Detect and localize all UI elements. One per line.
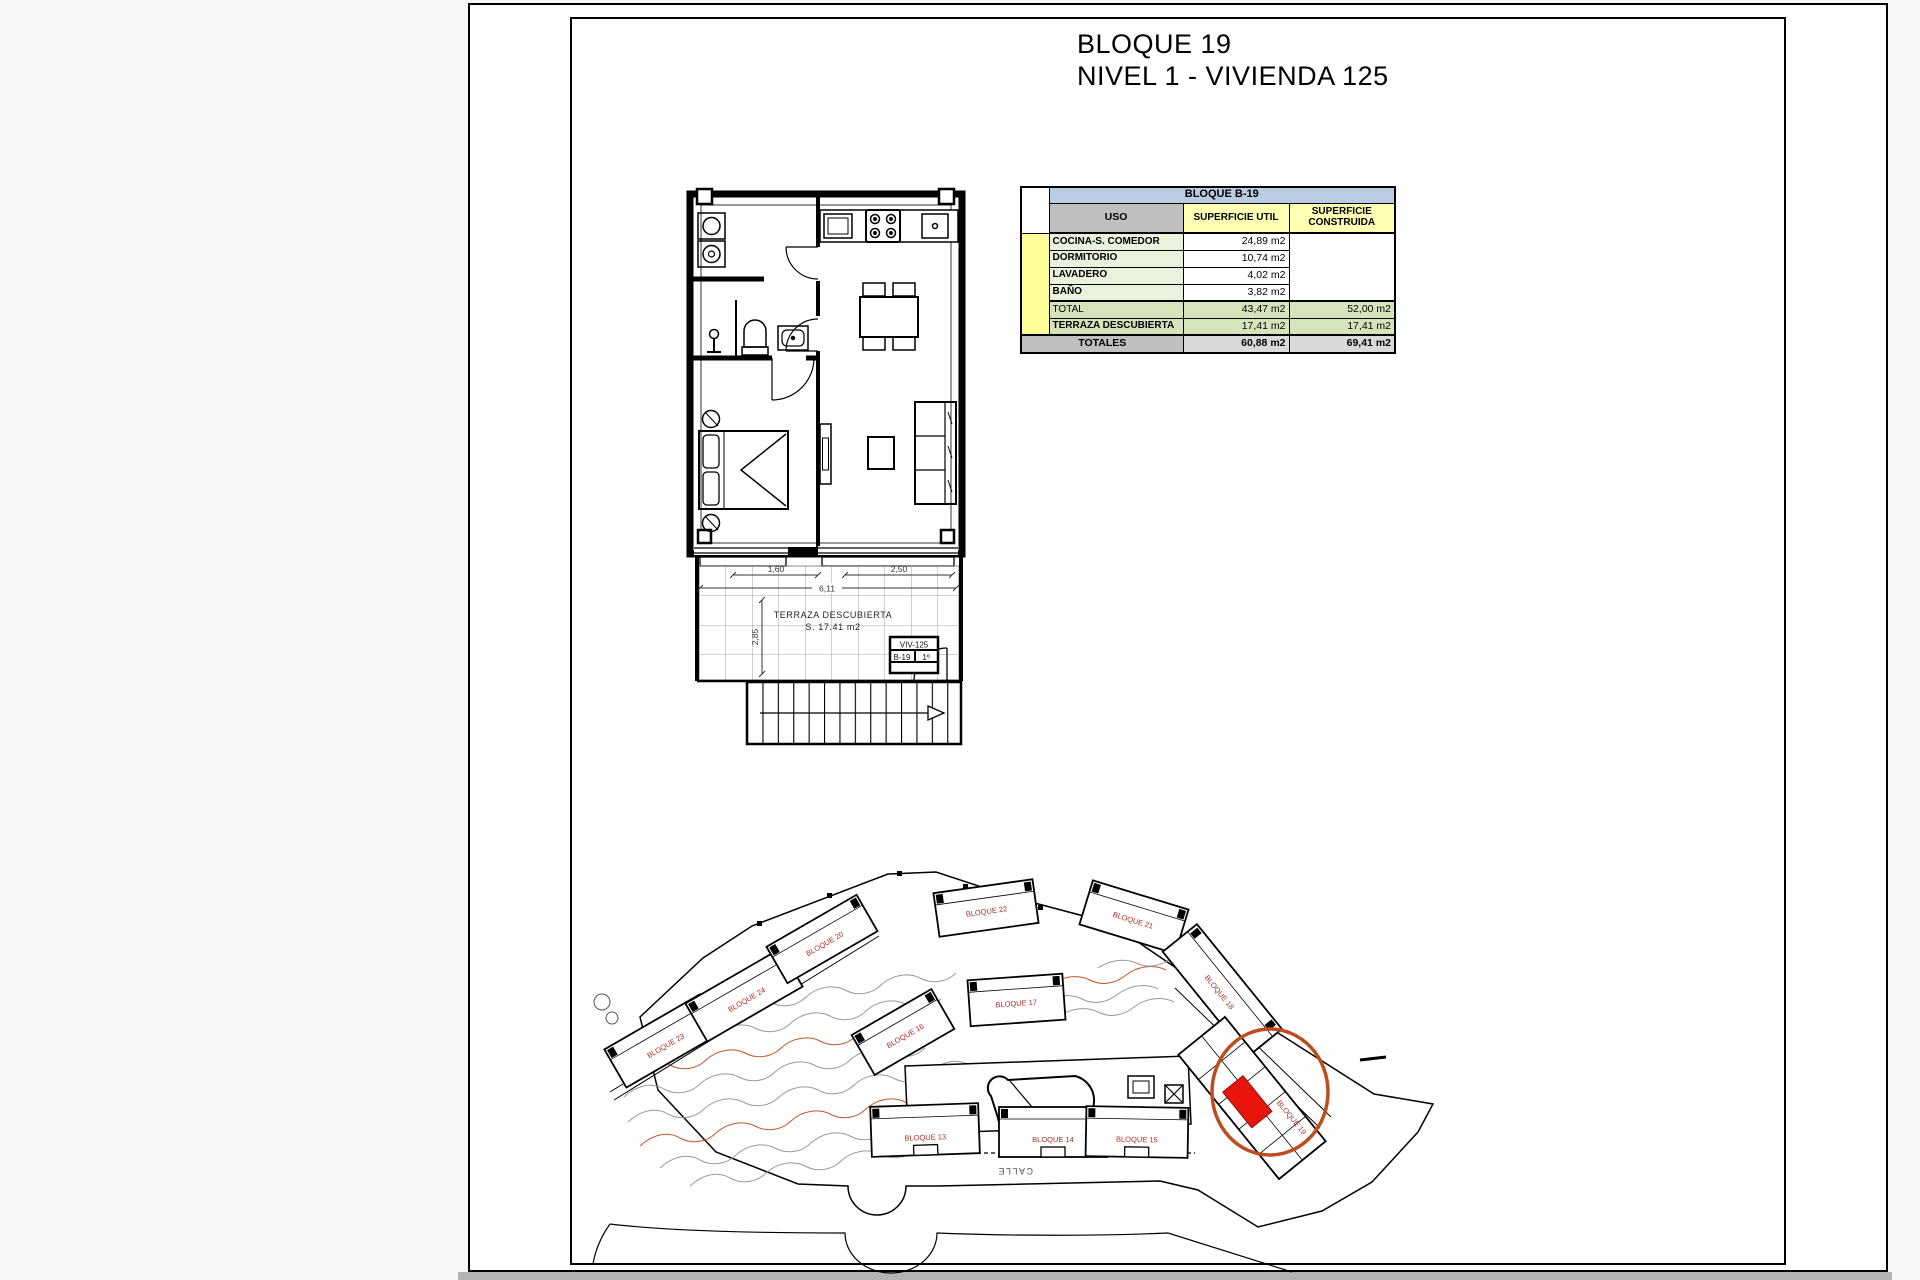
title-block-line: BLOQUE 19	[1077, 28, 1389, 60]
row-value-util: 24,89 m2	[1183, 233, 1289, 250]
totales-row: TOTALES 60,88 m2 69,41 m2	[1021, 335, 1395, 353]
row-value-util: 10,74 m2	[1183, 250, 1289, 267]
terraza-row: TERRAZA DESCUBIERTA 17,41 m2 17,41 m2	[1021, 318, 1395, 335]
col-header-superficie-construida: SUPERFICIE CONSTRUIDA	[1289, 203, 1395, 233]
page-edge-shadow	[458, 1272, 1892, 1280]
col-header-superficie-util: SUPERFICIE UTIL	[1183, 203, 1289, 233]
row-label: LAVADERO	[1049, 267, 1183, 284]
row-value-util: 3,82 m2	[1183, 284, 1289, 301]
row-label: COCINA-S. COMEDOR	[1049, 233, 1183, 250]
col-header-uso: USO	[1049, 203, 1183, 233]
table-block-header: BLOQUE B-19	[1049, 187, 1395, 203]
plan-sheet: { "page": { "title_line1": "BLOQUE 19", …	[0, 0, 1920, 1280]
row-label: DORMITORIO	[1049, 250, 1183, 267]
table-corner-cell	[1021, 187, 1049, 233]
vivienda-row-header: VIVIENDA 125	[1021, 233, 1049, 335]
table-row: VIVIENDA 125 COCINA-S. COMEDOR 24,89 m2	[1021, 233, 1395, 250]
row-label: BAÑO	[1049, 284, 1183, 301]
total-row: TOTAL 43,47 m2 52,00 m2	[1021, 301, 1395, 318]
row-value-util: 4,02 m2	[1183, 267, 1289, 284]
page-title: BLOQUE 19 NIVEL 1 - VIVIENDA 125	[1077, 28, 1389, 92]
areas-table: BLOQUE B-19 USO SUPERFICIE UTIL SUPERFIC…	[1020, 186, 1396, 354]
construida-merged-cell	[1289, 233, 1395, 301]
title-level-line: NIVEL 1 - VIVIENDA 125	[1077, 60, 1389, 92]
